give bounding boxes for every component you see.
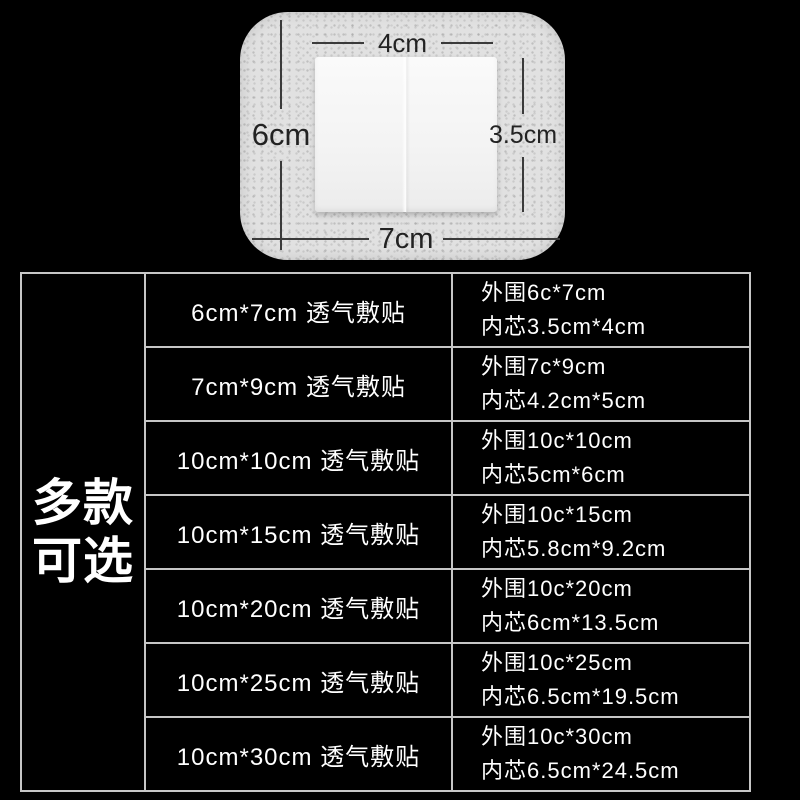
spec-cell-row5: 10cm*20cm 透气敷贴 <box>146 570 451 642</box>
detail-cell-row4: 外围10c*15cm 内芯5.8cm*9.2cm <box>453 496 749 568</box>
detail-cell-row1: 外围6c*7cm 内芯3.5cm*4cm <box>453 274 749 346</box>
detail-cell-row3: 外围10c*10cm 内芯5cm*6cm <box>453 422 749 494</box>
inner-size-row3: 内芯5cm*6cm <box>481 458 749 492</box>
inner-size-row5: 内芯6cm*13.5cm <box>481 606 749 640</box>
outer-size-row3: 外围10c*10cm <box>481 424 749 458</box>
dimension-top: 4cm <box>312 28 493 58</box>
dimension-line-right-upper <box>522 58 524 114</box>
dressing-image: 4cm 7cm 6cm 3.5cm <box>240 12 565 260</box>
outer-size-row5: 外围10c*20cm <box>481 572 749 606</box>
detail-cell-row2: 外围7c*9cm 内芯4.2cm*5cm <box>453 348 749 420</box>
inner-size-row4: 内芯5.8cm*9.2cm <box>481 532 749 566</box>
spec-cell-row6: 10cm*25cm 透气敷贴 <box>146 644 451 716</box>
banner-multiple-options: 多款 可选 <box>22 274 144 790</box>
dimension-line-left-lower <box>280 161 282 250</box>
inner-size-row6: 内芯6.5cm*19.5cm <box>481 680 749 714</box>
dimension-line-right-lower <box>522 157 524 213</box>
inner-size-row2: 内芯4.2cm*5cm <box>481 384 749 418</box>
spec-cell-row2: 7cm*9cm 透气敷贴 <box>146 348 451 420</box>
dimension-label-bottom: 7cm <box>369 223 444 256</box>
absorbent-pad <box>315 57 497 212</box>
dimension-line-top-left <box>312 42 364 44</box>
dimension-label-right: 3.5cm <box>489 114 557 157</box>
detail-cell-row6: 外围10c*25cm 内芯6.5cm*19.5cm <box>453 644 749 716</box>
spec-cell-row3: 10cm*10cm 透气敷贴 <box>146 422 451 494</box>
detail-cell-row7: 外围10c*30cm 内芯6.5cm*24.5cm <box>453 718 749 790</box>
detail-cell-row5: 外围10c*20cm 内芯6cm*13.5cm <box>453 570 749 642</box>
dimension-line-bottom-right <box>443 238 560 240</box>
spec-cell-row7: 10cm*30cm 透气敷贴 <box>146 718 451 790</box>
size-table: 多款 可选 6cm*7cm 透气敷贴 外围6c*7cm 内芯3.5cm*4cm … <box>20 272 751 792</box>
dimension-label-left: 6cm <box>252 109 311 161</box>
banner-line-2: 可选 <box>32 532 134 590</box>
dimension-line-top-right <box>441 42 493 44</box>
spec-cell-row4: 10cm*15cm 透气敷贴 <box>146 496 451 568</box>
outer-size-row4: 外围10c*15cm <box>481 498 749 532</box>
dimension-label-top: 4cm <box>364 28 441 59</box>
outer-size-row6: 外围10c*25cm <box>481 646 749 680</box>
dimension-line-left-upper <box>280 20 282 109</box>
outer-size-row2: 外围7c*9cm <box>481 350 749 384</box>
outer-size-row1: 外围6c*7cm <box>481 276 749 310</box>
dimension-right: 3.5cm <box>486 58 560 212</box>
spec-cell-row1: 6cm*7cm 透气敷贴 <box>146 274 451 346</box>
dimension-left: 6cm <box>250 20 312 250</box>
banner-line-1: 多款 <box>32 474 134 532</box>
inner-size-row7: 内芯6.5cm*24.5cm <box>481 754 749 788</box>
outer-size-row7: 外围10c*30cm <box>481 720 749 754</box>
inner-size-row1: 内芯3.5cm*4cm <box>481 310 749 344</box>
